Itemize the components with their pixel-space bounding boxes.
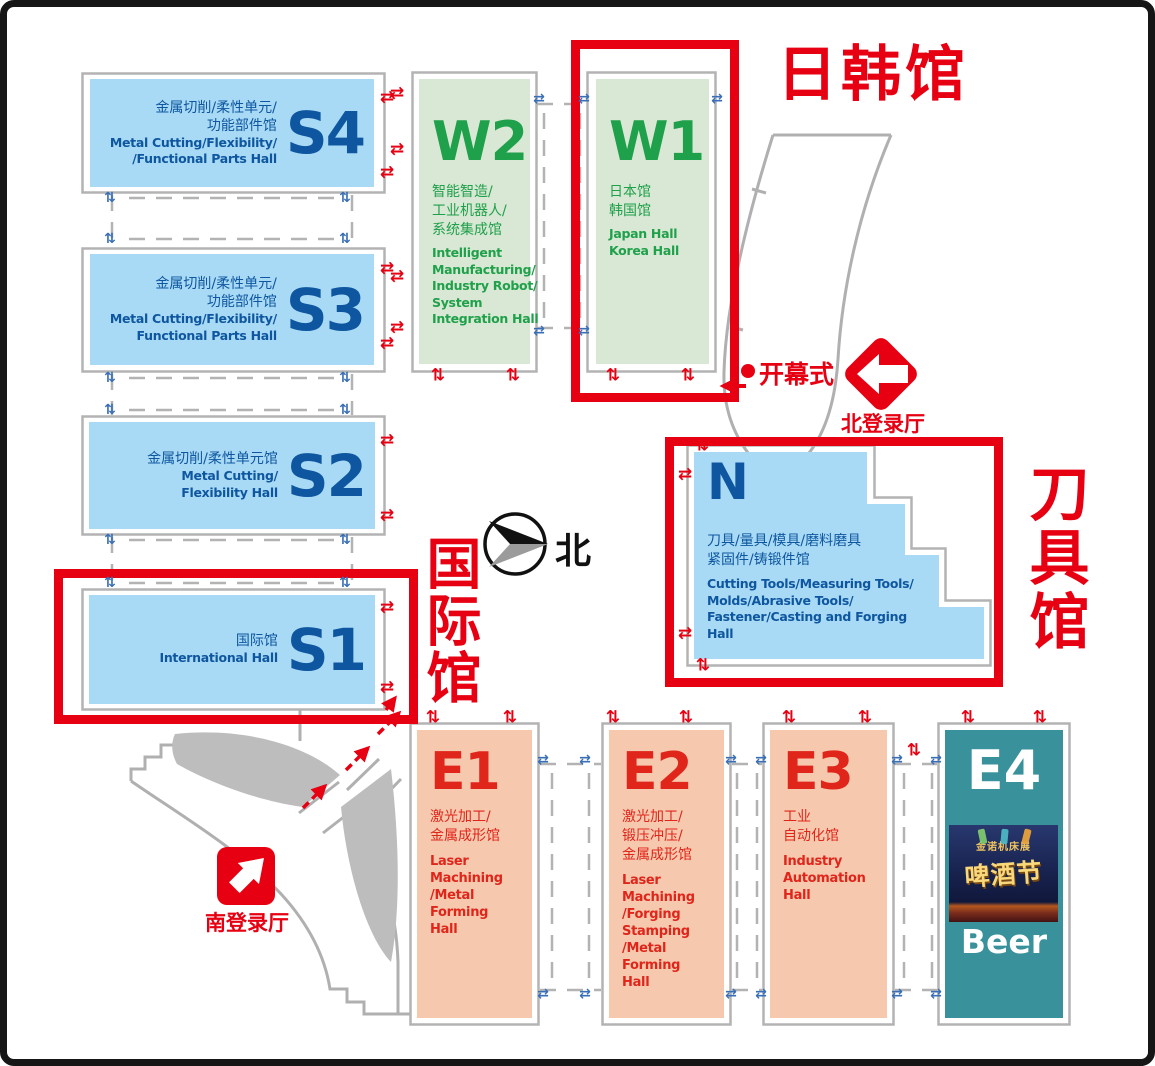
hall-code: S2 bbox=[287, 447, 365, 505]
south-registration-label: 南登录厅 bbox=[205, 907, 289, 937]
hall-name-en: Laser Machining /Forging Stamping /Metal… bbox=[622, 872, 724, 991]
hall-name-en: Intelligent Manufacturing/ Industry Robo… bbox=[432, 245, 530, 328]
hall-name-zh: 激光加工/ 锻压冲压/ 金属成形馆 bbox=[622, 808, 724, 865]
hall-w2: W2 智能智造/ 工业机器人/ 系统集成馆 Intelligent Manufa… bbox=[419, 79, 530, 364]
hall-s3-names: 金属切削/柔性单元/ 功能部件馆 Metal Cutting/Flexibili… bbox=[110, 275, 277, 344]
hall-code: W2 bbox=[432, 115, 530, 169]
hall-name-zh: 金属切削/柔性单元/ 功能部件馆 bbox=[110, 275, 277, 311]
hall-name-zh: 金属切削/柔性单元馆 bbox=[147, 450, 278, 468]
hall-s4-names: 金属切削/柔性单元/ 功能部件馆 Metal Cutting/Flexibili… bbox=[110, 99, 277, 168]
compass-north-label: 北 bbox=[555, 522, 591, 574]
hall-e3: E3 工业 自动化馆 Industry Automation Hall bbox=[770, 730, 887, 1018]
hall-code: S3 bbox=[286, 281, 364, 339]
hall-s2: 金属切削/柔性单元馆 Metal Cutting/ Flexibility Ha… bbox=[89, 422, 375, 529]
opening-ceremony-label: 开幕式 bbox=[759, 355, 834, 391]
hall-name-en: Metal Cutting/Flexibility/ /Functional P… bbox=[110, 135, 277, 168]
hall-name-en: Metal Cutting/Flexibility/ Functional Pa… bbox=[110, 311, 277, 344]
highlight-box-international bbox=[54, 569, 418, 724]
hall-s3: 金属切削/柔性单元/ 功能部件馆 Metal Cutting/Flexibili… bbox=[90, 254, 374, 365]
highlight-box-japan-korea bbox=[571, 40, 739, 402]
hall-name-zh: 工业 自动化馆 bbox=[783, 808, 887, 846]
hall-name-zh: 激光加工/ 金属成形馆 bbox=[430, 808, 532, 846]
south-entrance-building bbox=[131, 710, 410, 1014]
hall-code: E2 bbox=[622, 746, 724, 798]
hall-s2-names: 金属切削/柔性单元馆 Metal Cutting/ Flexibility Ha… bbox=[147, 450, 278, 501]
hall-name-en: Laser Machining /Metal Forming Hall bbox=[430, 853, 532, 938]
region-label-japan-korea-halls: 日韩馆 bbox=[777, 45, 969, 105]
hall-s4: 金属切削/柔性单元/ 功能部件馆 Metal Cutting/Flexibili… bbox=[90, 79, 374, 187]
hall-e2: E2 激光加工/ 锻压冲压/ 金属成形馆 Laser Machining /Fo… bbox=[609, 730, 724, 1018]
hall-code: E4 bbox=[945, 744, 1063, 798]
hall-name-zh: 金属切削/柔性单元/ 功能部件馆 bbox=[110, 99, 277, 135]
hall-code: E1 bbox=[430, 746, 532, 798]
bottle-icon bbox=[1000, 829, 1008, 845]
beer-festival-poster: 金诺机床展 啤酒节 bbox=[949, 825, 1058, 922]
region-label-international-hall: 国际馆 bbox=[419, 535, 478, 706]
hall-name-en: Industry Automation Hall bbox=[783, 853, 887, 904]
hall-e1: E1 激光加工/ 金属成形馆 Laser Machining /Metal Fo… bbox=[417, 730, 532, 1018]
north-registration-label: 北登录厅 bbox=[841, 408, 925, 438]
hall-name-zh: 智能智造/ 工业机器人/ 系统集成馆 bbox=[432, 183, 530, 240]
crowd-graphic bbox=[949, 902, 1058, 922]
beer-label: Beer bbox=[945, 922, 1063, 961]
hall-code: E3 bbox=[783, 746, 887, 798]
poster-title: 啤酒节 bbox=[949, 851, 1058, 895]
hall-code: S4 bbox=[286, 104, 364, 162]
hall-name-en: Metal Cutting/ Flexibility Hall bbox=[147, 468, 278, 501]
region-label-cutting-tools-hall: 刀具馆 bbox=[1021, 462, 1087, 654]
hall-e4: E4 金诺机床展 啤酒节 Beer bbox=[945, 730, 1063, 1018]
highlight-box-cutting-tools bbox=[665, 437, 1003, 687]
exhibition-floor-map: 金属切削/柔性单元/ 功能部件馆 Metal Cutting/Flexibili… bbox=[0, 0, 1155, 1066]
